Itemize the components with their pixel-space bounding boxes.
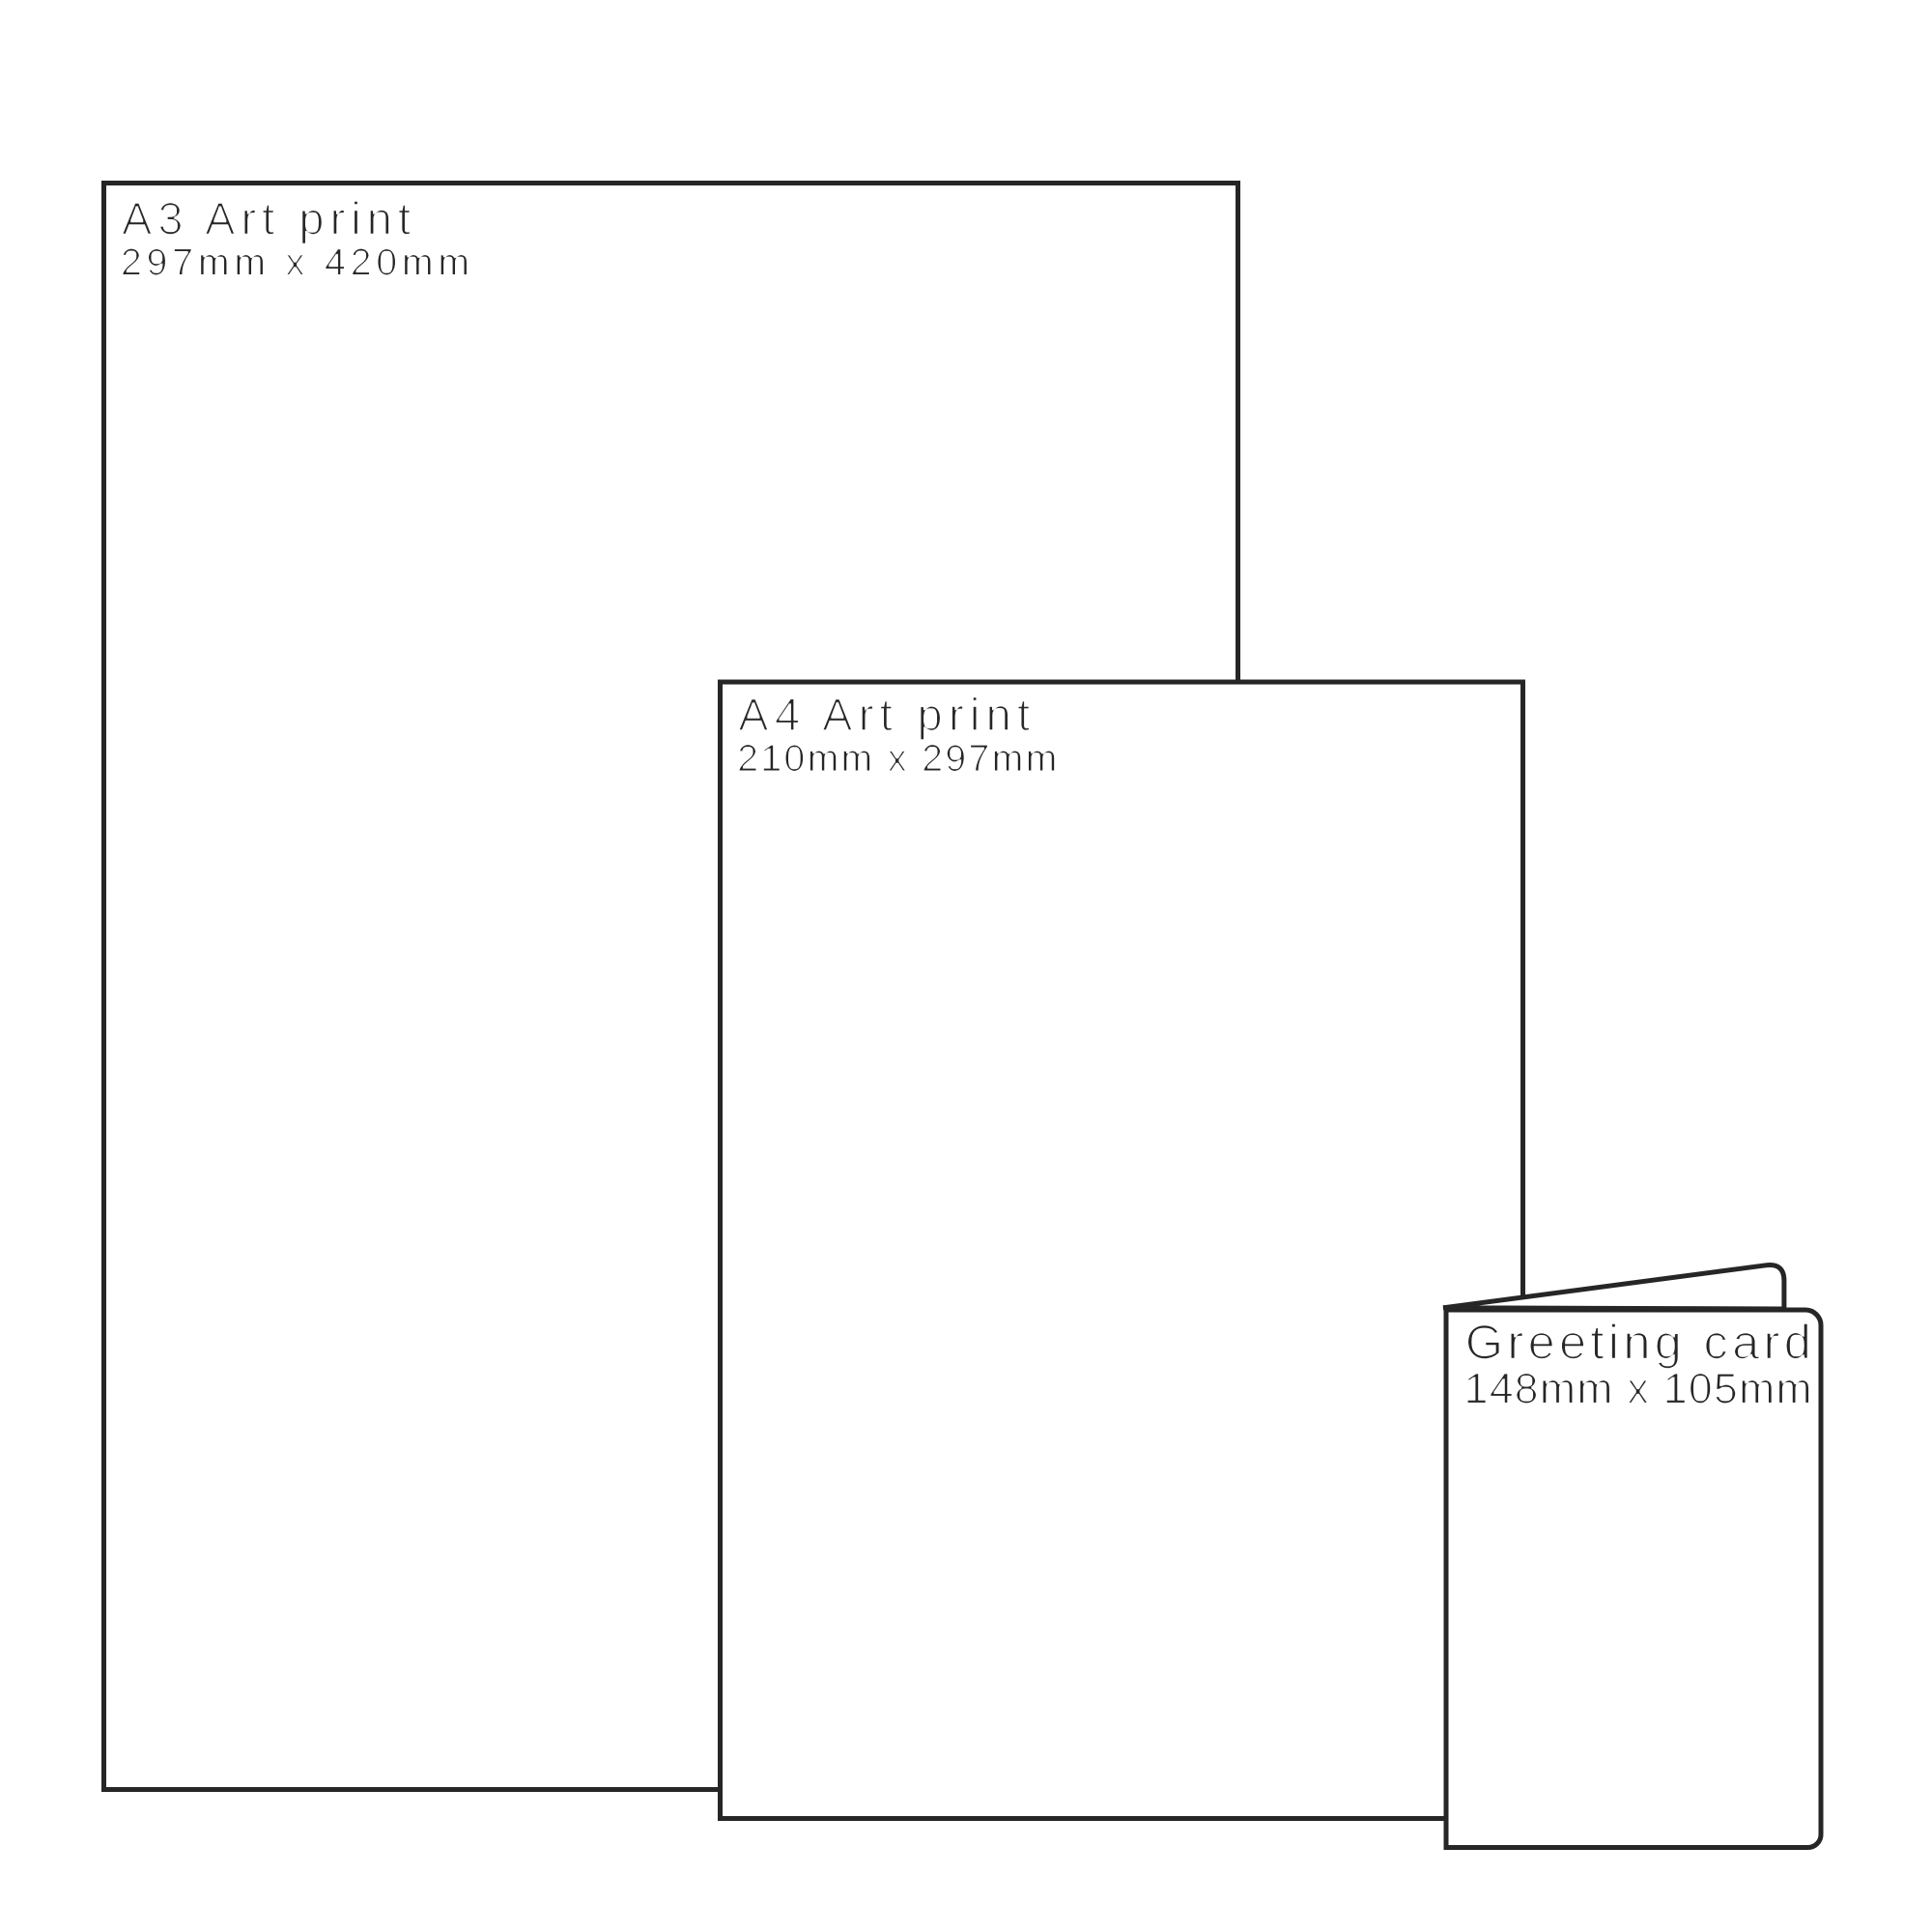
svg-text:297mm x 420mm: 297mm x 420mm xyxy=(121,242,469,284)
svg-text:A4 Art print: A4 Art print xyxy=(738,689,1030,740)
svg-text:148mm x 105mm: 148mm x 105mm xyxy=(1464,1365,1812,1412)
svg-text:Greeting card: Greeting card xyxy=(1465,1315,1811,1370)
svg-text:210mm x 297mm: 210mm x 297mm xyxy=(737,738,1057,780)
svg-text:A3 Art print: A3 Art print xyxy=(122,193,411,244)
